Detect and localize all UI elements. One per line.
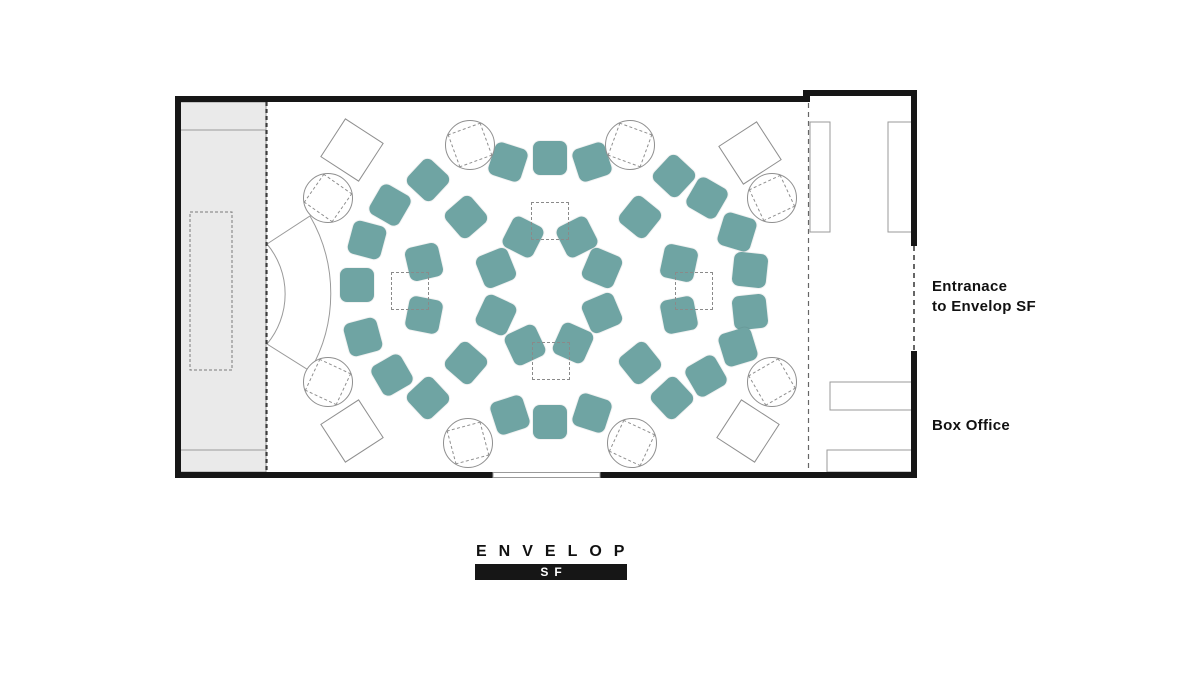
seat — [580, 291, 625, 336]
round-table — [747, 173, 797, 223]
seat — [367, 182, 413, 228]
seat — [489, 394, 532, 437]
seat — [731, 251, 768, 288]
equipment-marker — [675, 272, 713, 310]
round-table-top-outline — [447, 422, 490, 465]
seat — [346, 219, 388, 261]
entrance-label-line1: Entranace — [932, 277, 1036, 297]
round-table — [303, 173, 353, 223]
seat — [571, 392, 614, 435]
seat — [716, 211, 758, 253]
seat — [442, 193, 490, 241]
equipment-marker — [532, 342, 570, 380]
seat — [342, 316, 384, 358]
logo-sf-text: SF — [534, 565, 567, 579]
round-table-top-outline — [305, 359, 352, 406]
equipment-marker — [391, 272, 429, 310]
round-table-top-outline — [448, 123, 493, 168]
seat — [533, 405, 567, 439]
seat — [442, 339, 490, 387]
round-table-top-outline — [748, 358, 796, 406]
round-table — [747, 357, 797, 407]
seat — [717, 326, 759, 368]
corner-table — [320, 399, 384, 463]
seat — [616, 193, 664, 241]
entrance-label-line2: to Envelop SF — [932, 297, 1036, 317]
entrance-label: Entranace to Envelop SF — [932, 277, 1036, 317]
round-table — [607, 418, 657, 468]
seat — [474, 246, 518, 290]
seat — [580, 246, 625, 291]
seat — [533, 141, 567, 175]
seat — [616, 339, 664, 387]
seat — [340, 268, 374, 302]
corner-table — [716, 399, 780, 463]
round-table-top-outline — [749, 175, 796, 222]
seat — [473, 292, 518, 337]
logo-sf-badge: SF — [475, 564, 627, 580]
round-table — [445, 120, 495, 170]
floor-plan: Entranace to Envelop SF Box Office ENVEL… — [0, 0, 1200, 675]
round-table — [303, 357, 353, 407]
round-table-top-outline — [609, 420, 656, 467]
round-table — [443, 418, 493, 468]
round-table — [605, 120, 655, 170]
seat — [404, 156, 452, 204]
seat — [731, 293, 768, 330]
equipment-marker — [531, 202, 569, 240]
box-office-label: Box Office — [932, 416, 1010, 436]
round-table-top-outline — [608, 123, 653, 168]
round-table-top-outline — [304, 174, 353, 223]
envelop-logo-wordmark: ENVELOP — [476, 543, 636, 561]
